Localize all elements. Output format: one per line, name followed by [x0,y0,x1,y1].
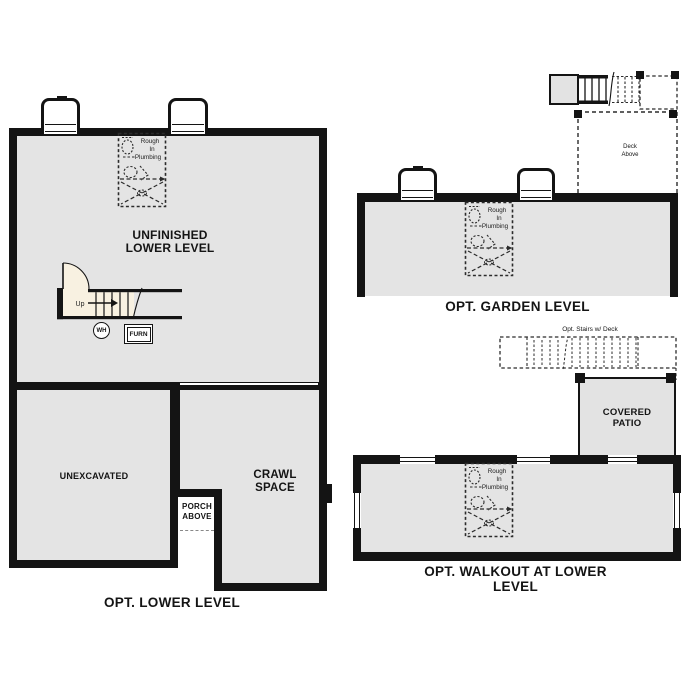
patio-post [575,373,585,383]
plumbing-label: In [149,146,155,153]
window-well [168,98,208,136]
wall [172,390,180,497]
rough-in-plumbing: Rough In Plumbing [464,201,514,277]
window-well [41,98,80,136]
stairs-up: Up [50,255,200,325]
plumbing-label: Rough [488,468,507,475]
stair-break-line [563,337,568,369]
plumbing-label: Rough [141,138,160,145]
wall [353,552,681,561]
room-label-porch-above: PORCH ABOVE [174,502,220,522]
toilet-icon [469,209,480,223]
room-label-unfinished-lower-level: UNFINISHED LOWER LEVEL [90,229,250,255]
wall [9,560,178,568]
deck-post [574,110,582,118]
porch-edge-dashed [180,530,214,531]
plumbing-label: Plumbing [135,154,162,161]
wall [9,128,17,390]
well-notch [57,96,67,100]
caption-opt-lower-level: OPT. LOWER LEVEL [60,595,284,610]
window-glazing [402,190,433,198]
opt-stairs-dashed [497,324,679,382]
deck-post [636,71,644,79]
window-glazing [45,124,76,132]
window [400,455,435,464]
furnace: FURN [124,324,153,344]
wall [319,128,327,390]
room-label-unexcavated: UNEXCAVATED [18,471,170,481]
room-label-covered-patio: COVERED PATIO [592,407,662,429]
patio-post [666,373,676,383]
deck-stairs [545,68,687,196]
rough-in-plumbing: Rough In Plumbing [117,132,167,208]
plumbing-label: Plumbing [482,223,509,230]
caption-opt-garden-level: OPT. GARDEN LEVEL [445,299,590,314]
plumbing-label: Plumbing [482,484,509,491]
water-heater: WH [93,322,110,339]
wall [357,193,365,297]
sink-icon [471,236,484,247]
sink-icon [124,167,137,178]
wh-label: WH [97,328,107,334]
wall [214,583,327,591]
furnace-label: FURN [127,327,151,342]
rough-in-plumbing: Rough In Plumbing [464,462,514,538]
stair-landing [550,75,578,104]
floorplan-sheet: Rough In Plumbing UNFINISHED LOWER LEVEL [0,0,687,687]
deck-above-label: Deck Above [604,143,656,159]
garden-floor [365,202,670,296]
window-glazing [172,124,204,132]
wall [670,193,678,297]
toilet-icon [469,470,480,484]
window-well [398,168,437,202]
window [673,493,681,528]
plumbing-label: Rough [488,207,507,214]
stair-break-line [609,72,614,106]
plumbing-label: In [496,215,502,222]
deck-post [671,71,679,79]
caption-opt-walkout: OPT. WALKOUT AT LOWER LEVEL [413,564,618,594]
well-notch [413,166,423,170]
deck-post [669,110,677,118]
wall-jog [319,484,332,503]
crawl-floor [222,490,319,583]
walkout-floor [361,463,673,553]
window [608,455,637,464]
window-well [517,168,555,202]
stair-break-line [133,288,142,319]
room-label-crawl-space: CRAWL SPACE [230,469,320,495]
window-glazing [521,190,551,198]
up-label: Up [76,301,85,308]
window [517,455,550,464]
sink-icon [471,497,484,508]
wall [9,382,17,568]
window [353,493,361,528]
foundation-line [180,383,318,385]
plumbing-label: In [496,476,502,483]
toilet-icon [122,140,133,154]
